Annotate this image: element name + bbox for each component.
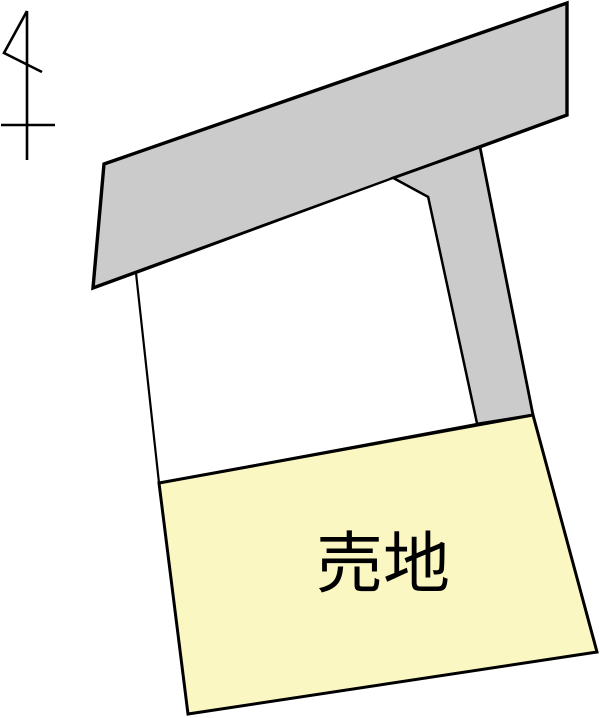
north-arrow-icon <box>1 11 55 160</box>
north-arrow-flag <box>4 11 42 72</box>
plot-map-canvas: 売地 <box>0 0 600 718</box>
sale-plot-label: 売地 <box>316 527 450 602</box>
plot-map: 売地 <box>0 0 600 718</box>
